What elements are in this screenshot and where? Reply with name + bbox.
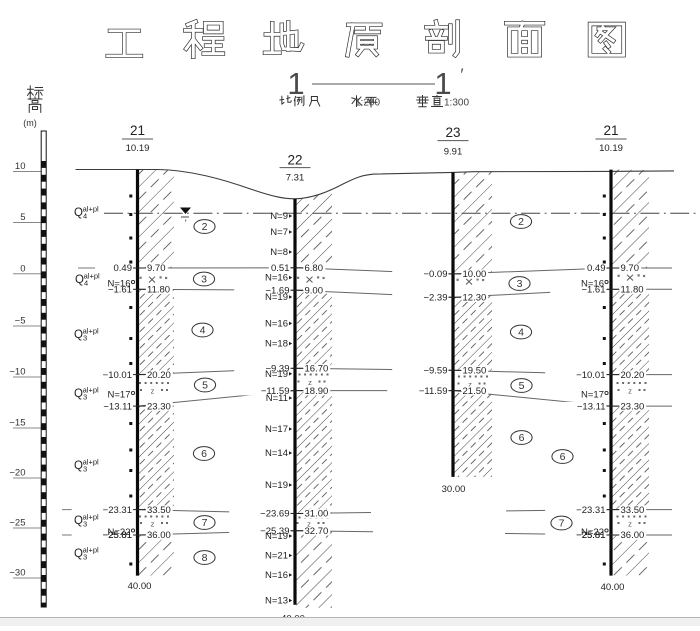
svg-text:N=16: N=16: [581, 279, 604, 290]
svg-text:z: z: [151, 520, 155, 529]
svg-text:−25: −25: [9, 518, 25, 529]
svg-text:23.30: 23.30: [147, 401, 171, 412]
svg-text:z: z: [628, 520, 632, 529]
svg-text:7.31: 7.31: [286, 173, 305, 184]
svg-text:21: 21: [130, 123, 145, 138]
svg-text:N=16: N=16: [265, 273, 288, 284]
svg-text:9.70: 9.70: [147, 263, 166, 274]
svg-text:N=16: N=16: [108, 279, 131, 290]
svg-text:36.00: 36.00: [147, 530, 171, 541]
svg-text:N=21: N=21: [265, 551, 288, 562]
svg-text:N=7: N=7: [270, 227, 288, 238]
svg-text:−13.11: −13.11: [103, 401, 132, 412]
svg-text:z: z: [151, 387, 155, 396]
svg-text:11.80: 11.80: [147, 285, 170, 296]
svg-text:N=17: N=17: [108, 390, 131, 401]
svg-text:40.00: 40.00: [128, 581, 152, 592]
svg-text:−30: −30: [9, 568, 25, 579]
svg-text:N=14: N=14: [265, 448, 288, 459]
svg-text:7: 7: [559, 518, 565, 530]
svg-text:−23.69: −23.69: [260, 509, 289, 520]
svg-text:1:200: 1:200: [355, 98, 380, 109]
svg-text:0: 0: [20, 263, 25, 274]
svg-text:12.30: 12.30: [463, 293, 487, 304]
svg-text:19.50: 19.50: [463, 366, 487, 377]
svg-text:−10.01: −10.01: [576, 370, 605, 381]
svg-text:3: 3: [517, 278, 523, 290]
svg-text:−0.09: −0.09: [423, 269, 447, 280]
svg-text:N=19: N=19: [265, 480, 288, 491]
svg-text:2: 2: [202, 221, 208, 233]
svg-text:10.00: 10.00: [463, 269, 487, 280]
svg-text:−20: −20: [9, 468, 25, 479]
svg-text:N=16: N=16: [265, 570, 288, 581]
svg-text:N=8: N=8: [270, 247, 288, 258]
svg-text:10.19: 10.19: [126, 143, 150, 154]
svg-text:N=16: N=16: [265, 318, 288, 329]
svg-text:10: 10: [15, 161, 26, 172]
svg-text:N=13: N=13: [265, 596, 288, 607]
svg-text:N=11: N=11: [266, 393, 288, 404]
svg-text:(m): (m): [23, 118, 37, 128]
svg-text:6: 6: [519, 432, 525, 444]
svg-text:9.00: 9.00: [305, 285, 324, 296]
svg-text:16.70: 16.70: [305, 364, 329, 375]
svg-text:0.49: 0.49: [114, 263, 133, 274]
svg-text:4: 4: [518, 327, 524, 339]
svg-text:9.70: 9.70: [621, 263, 640, 274]
svg-text:23: 23: [445, 125, 460, 140]
svg-text:21.50: 21.50: [463, 386, 487, 397]
svg-text:−10.01: −10.01: [103, 370, 132, 381]
svg-text:1:300: 1:300: [444, 98, 469, 109]
svg-text:5: 5: [202, 380, 208, 392]
svg-text:−11.59: −11.59: [419, 386, 448, 397]
svg-text:30.00: 30.00: [442, 484, 466, 495]
svg-text:7: 7: [202, 517, 208, 529]
svg-text:z: z: [628, 387, 632, 396]
svg-text:N=18: N=18: [265, 339, 288, 350]
svg-text:23.30: 23.30: [621, 401, 645, 412]
svg-text:−2.39: −2.39: [423, 293, 447, 304]
svg-text:2: 2: [518, 216, 524, 228]
svg-text:32.70: 32.70: [305, 526, 329, 537]
svg-text:10.19: 10.19: [599, 143, 623, 154]
svg-text:N=19: N=19: [265, 531, 288, 542]
svg-text:−25.81: −25.81: [103, 530, 132, 541]
svg-text:N=19: N=19: [265, 369, 288, 380]
svg-text:6.80: 6.80: [305, 263, 324, 274]
svg-text:36.00: 36.00: [621, 530, 645, 541]
svg-text:4: 4: [200, 325, 206, 337]
svg-text:40.00: 40.00: [601, 582, 625, 593]
svg-text:6: 6: [201, 448, 207, 460]
svg-text:1: 1: [287, 66, 304, 101]
svg-text:31.00: 31.00: [305, 509, 329, 520]
svg-text:−10: −10: [9, 367, 25, 378]
svg-text:5: 5: [519, 380, 525, 392]
svg-text:5: 5: [20, 212, 25, 223]
svg-text:N=17: N=17: [581, 390, 604, 401]
svg-text:20.20: 20.20: [147, 370, 171, 381]
svg-text:−13.11: −13.11: [577, 401, 606, 412]
svg-text:9.91: 9.91: [444, 147, 463, 158]
svg-text:−23.31: −23.31: [576, 505, 605, 516]
svg-text:33.50: 33.50: [621, 505, 645, 516]
svg-text:′: ′: [460, 65, 463, 84]
svg-text:6: 6: [560, 451, 566, 463]
svg-text:33.50: 33.50: [147, 505, 171, 516]
svg-text:21: 21: [603, 123, 618, 138]
svg-text:−9.59: −9.59: [423, 366, 447, 377]
svg-text:3: 3: [201, 274, 207, 286]
svg-text:−5: −5: [15, 316, 26, 327]
svg-text:−25.81: −25.81: [576, 530, 605, 541]
svg-text:8: 8: [202, 552, 208, 564]
svg-text:−23.31: −23.31: [103, 505, 132, 516]
svg-text:22: 22: [287, 153, 302, 168]
svg-text:11.80: 11.80: [621, 285, 644, 296]
svg-text:N=17: N=17: [265, 424, 288, 435]
svg-text:N=9: N=9: [270, 211, 288, 222]
svg-text:N=19: N=19: [265, 292, 288, 303]
svg-text:0.49: 0.49: [587, 263, 606, 274]
svg-text:20.20: 20.20: [621, 370, 645, 381]
svg-text:−15: −15: [9, 418, 25, 429]
svg-text:18.90: 18.90: [305, 386, 329, 397]
